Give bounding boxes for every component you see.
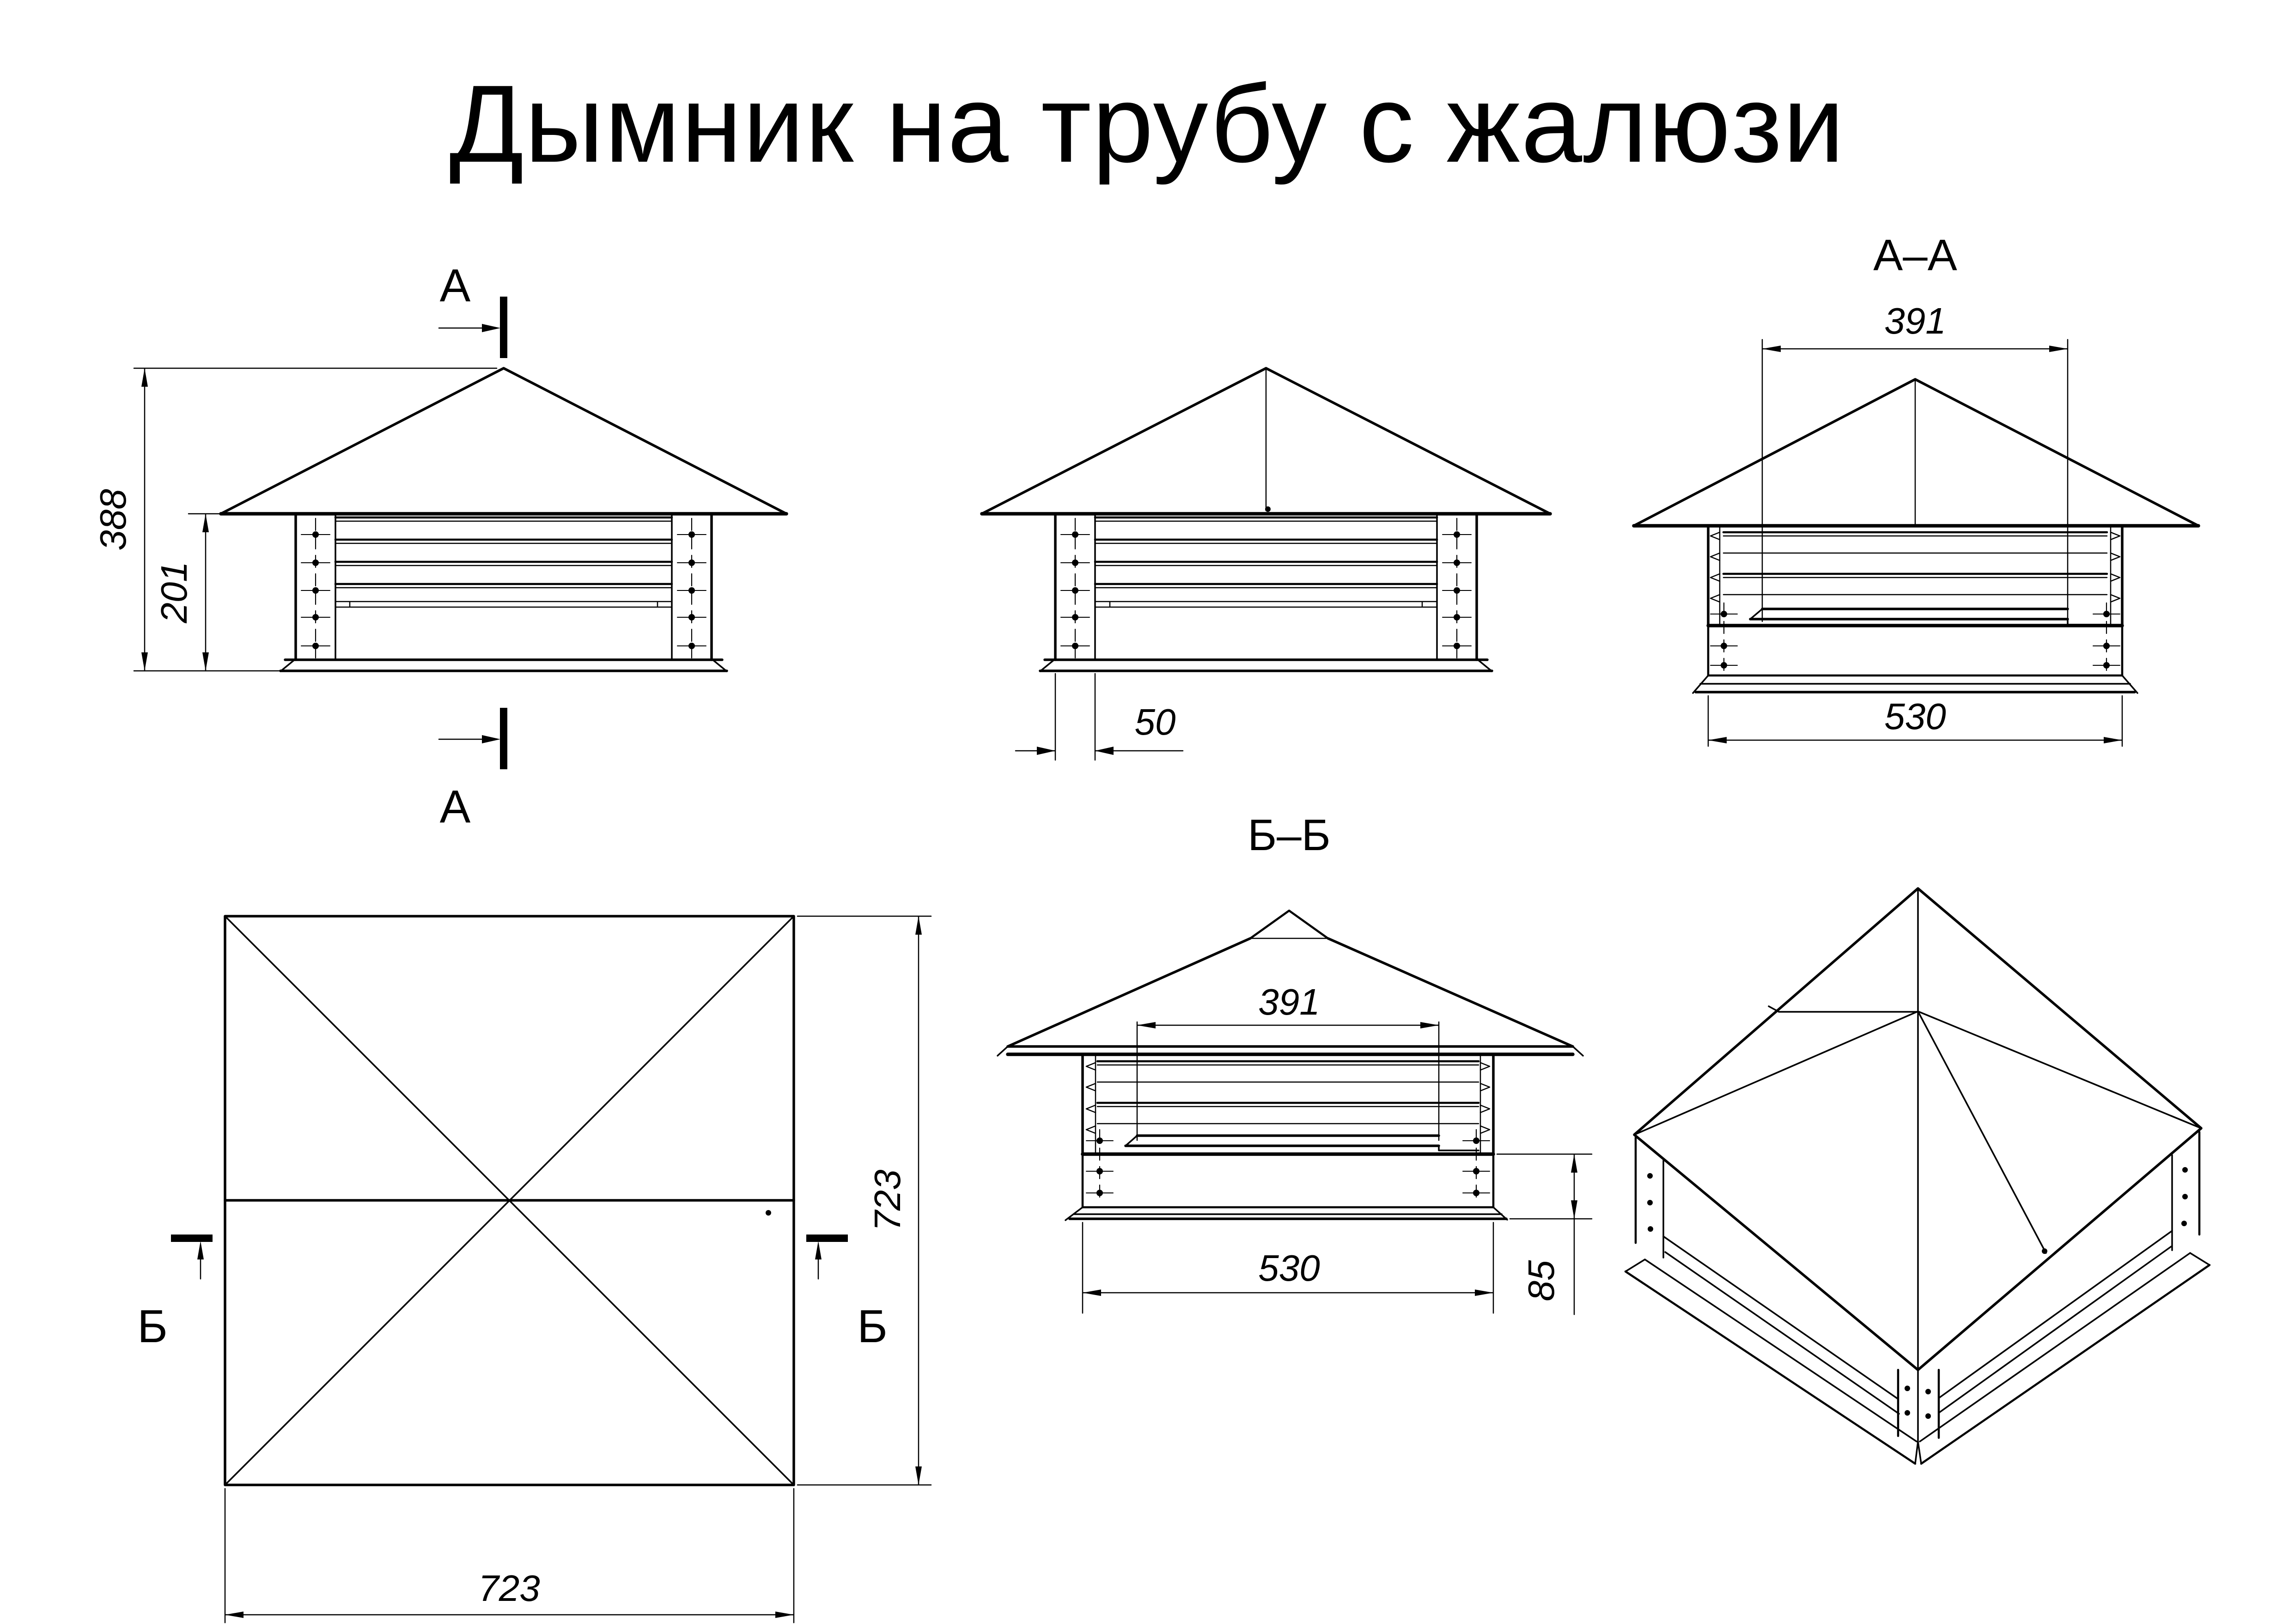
bb-rivets: [1086, 1130, 1490, 1201]
dim-total-height: 388: [92, 489, 134, 551]
aa-dim-530: 530: [1708, 696, 2122, 746]
bb-dim-85: 85: [1497, 1154, 1592, 1314]
side-flange: [1040, 660, 1492, 671]
section-label-a-bottom: А: [440, 781, 471, 833]
dim-plan-height: 723: [867, 1169, 908, 1231]
side-louver-slats-bottom: [1095, 521, 1437, 588]
iso-left-face-seam: [1769, 1006, 1917, 1012]
aa-damper-ends: [1750, 609, 2107, 625]
side-view: 50: [982, 368, 1550, 760]
section-mark-a-top: А: [439, 260, 504, 358]
aa-zone-outer-walls: [1708, 526, 2122, 626]
aa-slat-lower-edges: [1723, 536, 2107, 595]
bb-slat-lower-edges: [1097, 1065, 1479, 1124]
aa-zone-inner-walls: [1720, 526, 2111, 626]
section-arrow-icon: [482, 735, 500, 743]
aa-box-sides: [1708, 626, 2122, 675]
bb-wall-zigzag-steps: [1086, 1063, 1490, 1133]
section-bb-view: Б–Б 391: [998, 810, 1592, 1314]
dim-plan-width: 723: [478, 1568, 540, 1609]
dim-column-width: 50: [1135, 701, 1176, 742]
plan-dim-width: 723: [225, 1489, 794, 1623]
iso-right-face-seam: [1918, 1011, 2046, 1253]
plan-view: Б Б 723 723: [137, 916, 931, 1623]
side-dim-50: 50: [1016, 674, 1183, 760]
front-flange: [280, 660, 727, 671]
section-label-a-top: А: [440, 260, 471, 311]
front-rivets-right: [677, 518, 706, 658]
dim-bb-inner: 391: [1258, 981, 1320, 1022]
front-rivets-left: [301, 518, 330, 658]
bb-dim-530: 530: [1083, 1223, 1493, 1313]
bb-zone-outer-walls: [1083, 1054, 1493, 1154]
dim-bb-flange-height: 85: [1521, 1260, 1562, 1301]
front-louver-slats-top: [335, 517, 672, 584]
side-rivets-left: [1061, 518, 1090, 658]
section-mark-b-left: Б: [137, 1238, 213, 1352]
aa-damper-plate: [1750, 609, 2068, 619]
side-louver-slats-top: [1095, 517, 1437, 584]
page-title: Дымник на трубу с жалюзи: [449, 63, 1845, 185]
section-mark-a-bottom: А: [439, 708, 504, 833]
front-column-inner-edges: [335, 514, 672, 660]
iso-near-post: [1898, 1370, 1939, 1441]
bb-zone-inner-walls: [1096, 1054, 1480, 1154]
side-body-sides: [1055, 514, 1477, 660]
side-hip-rivet: [1265, 506, 1271, 512]
section-label-b-right: Б: [857, 1301, 888, 1352]
aa-wall-zigzag-steps: [1711, 532, 2120, 602]
plan-dim-height: 723: [797, 916, 931, 1485]
aa-roof-slopes: [1634, 379, 2198, 526]
drawing-sheet: Дымник на трубу с жалюзи: [0, 0, 2295, 1624]
bb-damper-ends: [1126, 1136, 1479, 1150]
technical-drawing: Дымник на трубу с жалюзи: [0, 0, 2295, 1624]
iso-hip-ridges: [1634, 888, 2201, 1370]
section-aa-view: А–А 391: [1634, 231, 2198, 746]
section-label-b-left: Б: [137, 1301, 168, 1352]
front-dim-201: 201: [153, 514, 221, 671]
section-aa-title: А–А: [1873, 231, 1957, 280]
side-column-inner-edges: [1095, 514, 1437, 660]
side-rivets-right: [1443, 518, 1471, 658]
section-arrow-icon: [482, 324, 500, 332]
iso-seam-rivet: [2042, 1248, 2047, 1254]
front-roof-slopes: [221, 368, 786, 514]
dim-aa-inner: 391: [1884, 300, 1946, 341]
isometric-view: [1625, 888, 2210, 1464]
bb-damper-plate: [1126, 1136, 1439, 1146]
front-louver-rail: [335, 602, 672, 607]
front-view: 388 201 А А: [92, 260, 786, 833]
bb-roof-cap: [1250, 911, 1328, 938]
plan-seam-rivet: [766, 1210, 771, 1216]
section-arrow-icon: [815, 1241, 822, 1259]
side-louver-rail: [1095, 602, 1437, 607]
dim-bb-outer: 530: [1258, 1247, 1320, 1289]
front-body-sides: [296, 514, 712, 660]
section-bb-title: Б–Б: [1248, 810, 1330, 860]
dim-aa-outer: 530: [1884, 696, 1946, 737]
aa-rivets: [1711, 603, 2120, 671]
bb-box-sides: [1083, 1154, 1493, 1207]
front-louver-slats-bottom: [335, 521, 672, 588]
section-mark-b-right: Б: [806, 1238, 888, 1352]
dim-body-height: 201: [153, 561, 195, 623]
section-arrow-icon: [197, 1241, 204, 1259]
